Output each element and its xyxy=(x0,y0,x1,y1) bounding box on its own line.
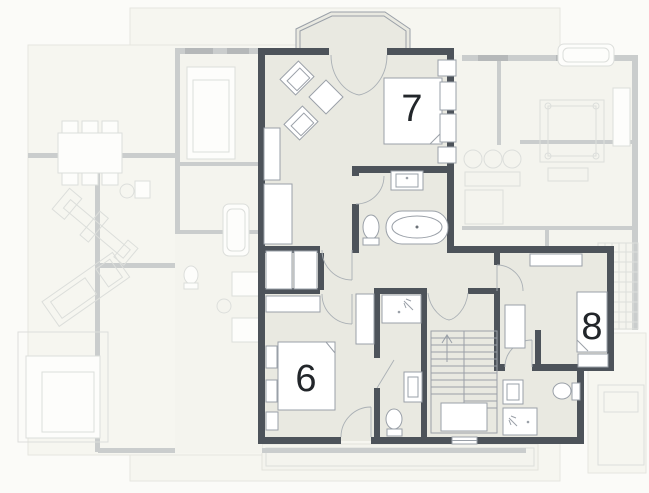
bathtub-faded xyxy=(558,44,614,66)
side-table xyxy=(135,181,150,198)
shelf xyxy=(530,254,582,266)
nightstand xyxy=(266,380,277,402)
floor-plan-image: 7 6 xyxy=(0,0,649,493)
toilet xyxy=(363,215,379,239)
wardrobe-faded xyxy=(613,88,630,146)
toilet xyxy=(386,409,402,429)
cabinet xyxy=(266,412,278,430)
room-8-label: 8 xyxy=(581,306,602,348)
bed xyxy=(26,356,100,438)
floor-plan-page: 7 6 xyxy=(0,0,649,493)
shelf xyxy=(264,128,280,180)
wardrobe xyxy=(440,82,456,110)
desk xyxy=(232,272,260,296)
wardrobe xyxy=(294,251,317,289)
middle-unit xyxy=(175,48,262,453)
nightstand xyxy=(438,60,456,76)
desk xyxy=(232,318,260,342)
stair-landing xyxy=(441,403,487,431)
bed xyxy=(187,67,235,159)
wardrobe xyxy=(266,251,292,289)
dresser xyxy=(266,296,320,312)
wardrobe xyxy=(505,305,525,348)
tall-cabinet xyxy=(356,294,374,344)
wardrobe xyxy=(264,184,292,244)
wardrobe xyxy=(440,114,456,142)
dining-table xyxy=(58,121,122,185)
bed-bench xyxy=(578,354,608,367)
toilet xyxy=(553,383,571,399)
shower xyxy=(503,408,537,435)
hallway xyxy=(266,251,317,289)
room-7-label: 7 xyxy=(401,88,422,130)
nightstand xyxy=(266,346,277,368)
shower xyxy=(382,295,421,323)
room-6-label: 6 xyxy=(295,358,316,400)
nightstand xyxy=(438,147,456,163)
toilet-faded xyxy=(184,266,198,284)
